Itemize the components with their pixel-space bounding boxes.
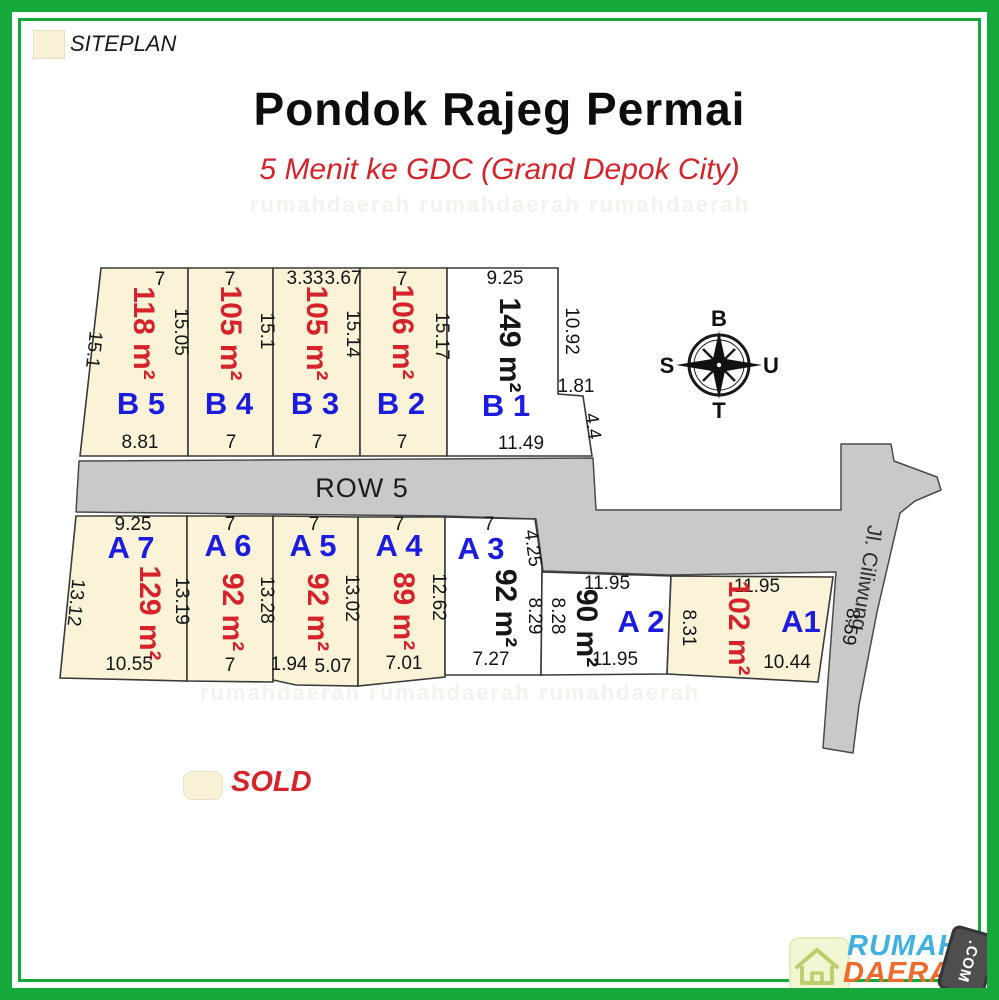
dim-a4-bottom: 7.01 bbox=[386, 653, 423, 674]
page-subtitle: 5 Menit ke GDC (Grand Depok City) bbox=[0, 153, 999, 187]
dim-b3-bottom: 7 bbox=[312, 432, 323, 453]
compass-label-right: U bbox=[763, 353, 779, 378]
compass-label-bottom: T bbox=[712, 398, 726, 423]
dim-a7-right: 13.19 bbox=[171, 577, 192, 625]
plot-b3-area-label: 105 m² bbox=[300, 285, 333, 380]
dim-b2-right: 15.17 bbox=[431, 312, 452, 360]
dim-b1-bottom: 11.49 bbox=[498, 433, 544, 454]
dim-a4-right: 12.62 bbox=[428, 573, 449, 621]
dim-b5-bottom: 8.81 bbox=[122, 432, 159, 453]
watermark-row: rumahdaerah rumahdaerah rumahdaerah bbox=[250, 192, 750, 217]
logo-house-tile bbox=[789, 937, 850, 995]
plot-a4-id: A 4 bbox=[375, 528, 423, 563]
dim-b1-top: 9.25 bbox=[487, 268, 524, 289]
plot-a1-area-label: 102 m² bbox=[722, 580, 755, 675]
dim-a7-bottom: 10.55 bbox=[105, 654, 153, 675]
watermark-row: rumahdaerah rumahdaerah rumahdaerah bbox=[200, 680, 700, 705]
plot-b5-id: B 5 bbox=[117, 386, 165, 421]
plot-a6-id: A 6 bbox=[204, 528, 251, 563]
plot-b1-area-label: 149 m² bbox=[493, 297, 526, 392]
dim-a5-bottom-right: 5.07 bbox=[315, 656, 352, 677]
plot-b2-id: B 2 bbox=[377, 386, 425, 421]
dim-a3-right: 8.29 bbox=[524, 598, 545, 635]
plot-a3-area-label: 92 m² bbox=[489, 569, 522, 647]
plot-a3-id: A 3 bbox=[457, 531, 504, 566]
dim-b4-right: 15.1 bbox=[256, 313, 277, 350]
dim-b3-right: 15.14 bbox=[342, 310, 363, 358]
dim-b5-left: 15.1 bbox=[81, 330, 106, 369]
page-title: Pondok Rajeg Permai bbox=[0, 82, 999, 136]
dim-a1-bottom: 10.44 bbox=[763, 652, 811, 673]
dim-a3-bottom: 7.27 bbox=[473, 649, 510, 670]
siteplan-legend-swatch bbox=[33, 30, 65, 59]
siteplan-poster: SITEPLAN Pondok Rajeg Permai 5 Menit ke … bbox=[0, 0, 999, 1000]
sold-legend-label: SOLD bbox=[231, 766, 312, 799]
house-icon bbox=[791, 939, 844, 989]
plot-a2-id: A 2 bbox=[617, 604, 664, 639]
plot-b4-area-label: 105 m² bbox=[214, 285, 247, 380]
plot-a4-area-label: 89 m² bbox=[387, 572, 420, 650]
plot-b1-id: B 1 bbox=[482, 388, 530, 423]
plot-a1-id: A1 bbox=[781, 604, 821, 639]
plot-a7-id: A 7 bbox=[107, 530, 154, 565]
siteplan-legend-label: SITEPLAN bbox=[70, 30, 176, 57]
plot-b5-area-label: 118 m² bbox=[127, 286, 160, 379]
dim-b2-bottom: 7 bbox=[397, 432, 408, 453]
plot-b2-area-label: 106 m² bbox=[386, 284, 419, 379]
dim-a5-bottom-left: 1.94 bbox=[271, 654, 308, 675]
dim-a6-right: 13.28 bbox=[256, 576, 277, 624]
dim-b1-notch-side: 4.4 bbox=[580, 412, 605, 442]
sold-legend-swatch bbox=[183, 771, 223, 800]
plot-b3-id: B 3 bbox=[291, 386, 339, 421]
plot-a7-area-label: 129 m² bbox=[133, 565, 166, 660]
plot-a6-area-label: 92 m² bbox=[216, 573, 249, 651]
dim-a7-left: 13.12 bbox=[63, 578, 89, 627]
dim-a1-left: 8.31 bbox=[678, 610, 699, 647]
dim-a5-right: 13.02 bbox=[341, 574, 362, 622]
plot-a5-area-label: 92 m² bbox=[301, 573, 334, 651]
dim-a2-left: 8.28 bbox=[547, 598, 568, 635]
siteplan-map: rumahdaerah rumahdaerah rumahdaerah ruma… bbox=[0, 0, 999, 1000]
dim-b1-notch: 1.81 bbox=[558, 376, 595, 397]
dim-a6-bottom: 7 bbox=[225, 655, 236, 676]
dim-b5-right: 15.05 bbox=[170, 308, 191, 356]
compass-label-left: S bbox=[660, 353, 675, 378]
dim-b4-bottom: 7 bbox=[226, 432, 237, 453]
dim-a2-bottom: 11.95 bbox=[592, 649, 638, 670]
compass-rose: B U S T bbox=[660, 306, 779, 423]
plot-a5-id: A 5 bbox=[289, 528, 336, 563]
dim-b1-right: 10.92 bbox=[561, 307, 582, 355]
road-row5-label: ROW 5 bbox=[315, 473, 409, 503]
compass-label-top: B bbox=[711, 306, 727, 331]
logo-com-label: .COM bbox=[954, 939, 982, 985]
plot-b4-id: B 4 bbox=[205, 386, 254, 421]
